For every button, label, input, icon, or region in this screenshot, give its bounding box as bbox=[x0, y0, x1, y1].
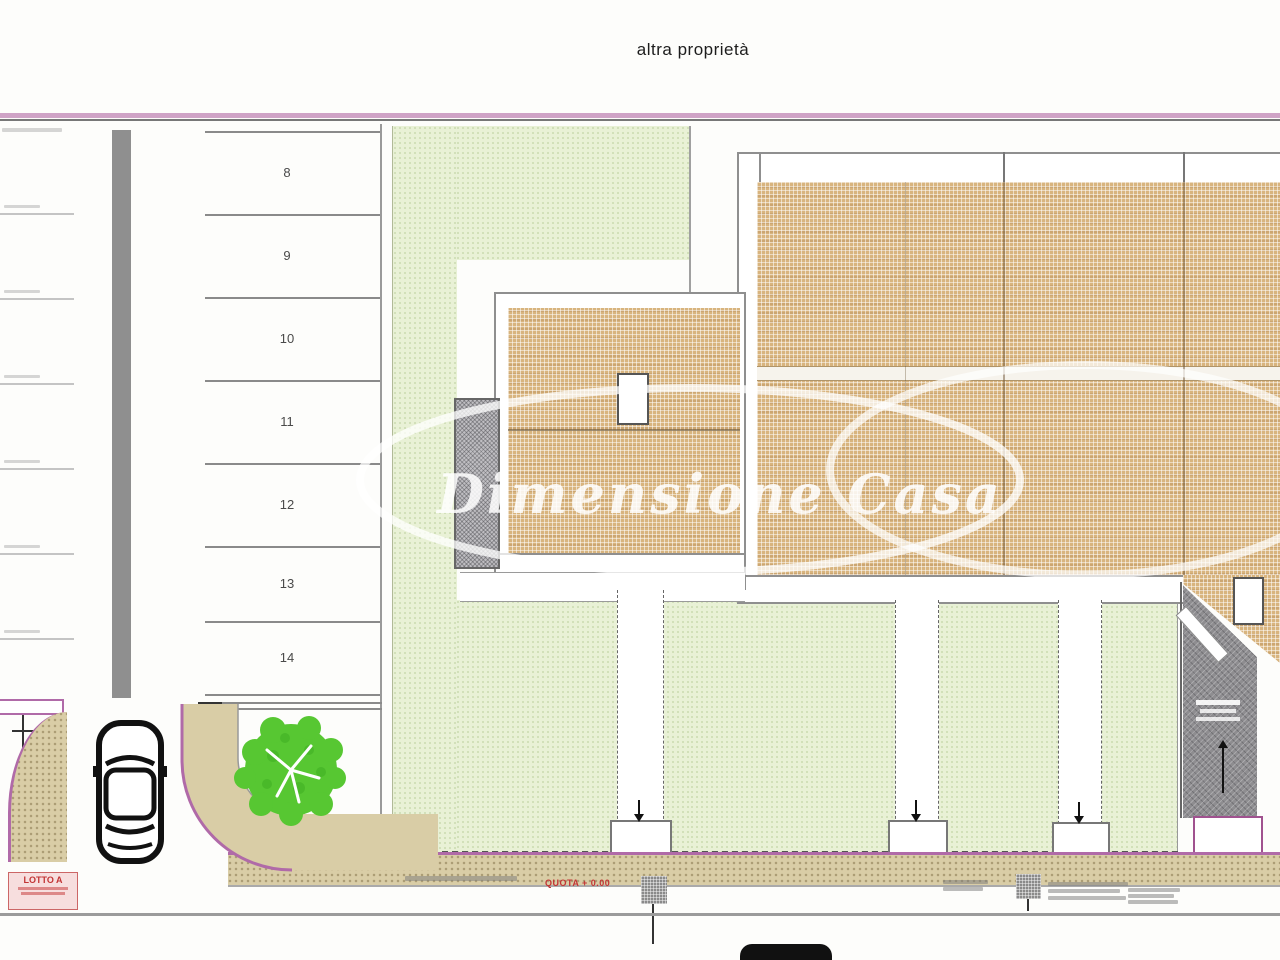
eave-division-line bbox=[1003, 152, 1005, 184]
parking-stall-number: 10 bbox=[267, 331, 307, 346]
parking-stall-line bbox=[0, 383, 74, 385]
parking-stall-number: 13 bbox=[267, 576, 307, 591]
sidewalk-stub bbox=[0, 699, 64, 715]
parking-stall-line bbox=[205, 214, 381, 216]
gate-arrow-head bbox=[911, 814, 921, 822]
building-left-roof bbox=[508, 308, 740, 555]
plan-title: altra proprietà bbox=[598, 40, 788, 60]
annotation-text-blur bbox=[943, 880, 988, 884]
boundary-line-pink bbox=[0, 113, 1280, 118]
road-edge-line bbox=[0, 913, 1280, 916]
annotation-text-blur bbox=[4, 375, 40, 378]
boundary-line-gray bbox=[0, 119, 1280, 121]
chimney-right bbox=[1233, 577, 1264, 625]
pillar-symbol bbox=[1016, 874, 1041, 899]
annotation-text-blur bbox=[4, 630, 40, 633]
eave-division-line bbox=[1183, 152, 1185, 184]
parking-median-wall bbox=[112, 130, 131, 698]
tree-icon bbox=[233, 712, 349, 828]
annotation-text-blur bbox=[1048, 896, 1126, 900]
parking-stall-line bbox=[205, 297, 381, 299]
parking-stall-line bbox=[0, 298, 74, 300]
roof-section-line bbox=[1003, 182, 1005, 575]
parking-stall-line bbox=[0, 553, 74, 555]
parking-stall-line bbox=[205, 546, 381, 548]
stair-shaft bbox=[454, 398, 500, 569]
roof-section-line bbox=[1183, 182, 1185, 575]
ramp-arrow-head bbox=[1218, 740, 1228, 748]
lotto-label-box: LOTTO A bbox=[8, 872, 78, 910]
parking-stall-line bbox=[205, 621, 381, 623]
annotation-text-blur bbox=[943, 887, 983, 891]
parking-stall-line bbox=[205, 380, 381, 382]
ramp-label-blur bbox=[1196, 717, 1240, 721]
site-plan: altra proprietà 891011121314 bbox=[0, 0, 1280, 960]
annotation-text-blur bbox=[4, 545, 40, 548]
parking-stall-number: 14 bbox=[267, 650, 307, 665]
parking-stall-line bbox=[0, 468, 74, 470]
annotation-text-blur bbox=[2, 128, 62, 132]
annotation-text-blur bbox=[4, 290, 40, 293]
eave-line bbox=[494, 553, 744, 555]
parking-stall-number: 12 bbox=[267, 497, 307, 512]
parking-stall-number: 8 bbox=[267, 165, 307, 180]
car-icon bbox=[93, 718, 167, 866]
pillar-symbol bbox=[641, 876, 667, 904]
street-car-partial bbox=[740, 944, 832, 960]
sidewalk-curve-left bbox=[8, 712, 67, 862]
parking-stall-line bbox=[205, 694, 381, 696]
building-walkway-band bbox=[460, 572, 745, 602]
garden-top bbox=[456, 126, 690, 260]
annotation-text-blur bbox=[1128, 894, 1174, 898]
annotation-text-blur bbox=[21, 892, 65, 895]
parking-stall-line bbox=[0, 638, 74, 640]
parking-stall-line bbox=[205, 131, 381, 133]
gate-arrow-head bbox=[634, 814, 644, 822]
annotation-text-blur bbox=[1128, 900, 1178, 904]
building-right-top-eave bbox=[742, 152, 1280, 186]
chimney-left bbox=[617, 373, 649, 425]
annotation-text-blur bbox=[1048, 882, 1128, 886]
roof-ridge-line bbox=[757, 366, 1280, 381]
roof-section-line bbox=[905, 182, 906, 575]
annotation-text-blur bbox=[18, 887, 68, 890]
roof-ridge-line bbox=[508, 429, 740, 431]
pillar-leader-line bbox=[652, 904, 654, 944]
parking-stall-number: 11 bbox=[267, 414, 307, 429]
ramp-label-blur bbox=[1200, 709, 1236, 713]
ramp-label-blur bbox=[1196, 700, 1240, 705]
gate-arrow-head bbox=[1074, 816, 1084, 824]
pillar-leader-line bbox=[1027, 899, 1029, 911]
parking-stall-number: 9 bbox=[267, 248, 307, 263]
annotation-text-blur bbox=[405, 876, 517, 881]
annotation-text-blur bbox=[1048, 889, 1120, 893]
lotto-label: LOTTO A bbox=[24, 875, 63, 885]
annotation-text-blur bbox=[1128, 888, 1180, 892]
parking-stall-line bbox=[205, 463, 381, 465]
parking-stall-line bbox=[0, 213, 74, 215]
building-right-bottom-eave bbox=[745, 575, 1183, 604]
annotation-text-blur bbox=[4, 205, 40, 208]
garden-edge-line bbox=[689, 126, 691, 298]
ramp-arrow-icon bbox=[1222, 748, 1224, 793]
annotation-text-blur bbox=[4, 460, 40, 463]
